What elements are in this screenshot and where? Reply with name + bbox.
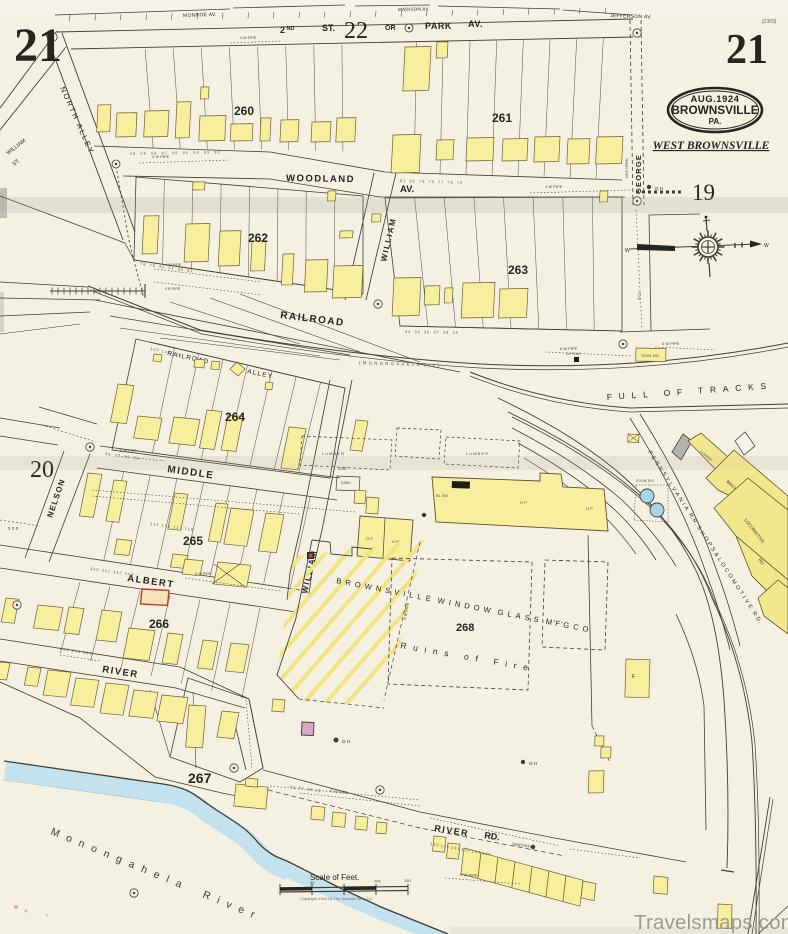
- svg-text:O P: O P: [366, 536, 373, 541]
- svg-text:W: W: [764, 243, 769, 249]
- svg-text:O.P.POLE: O.P.POLE: [566, 352, 580, 356]
- svg-text:W: W: [625, 248, 630, 254]
- svg-text:x x x: x x x: [8, 526, 19, 532]
- svg-text:OR: OR: [385, 25, 396, 32]
- svg-text:21: 21: [14, 19, 62, 72]
- svg-text:O H: O H: [529, 761, 537, 766]
- svg-text:265: 265: [183, 534, 203, 548]
- svg-text:L U M B E R: L U M B E R: [322, 451, 344, 456]
- svg-text:4 B PIPE: 4 B PIPE: [165, 287, 181, 291]
- svg-text:O H: O H: [342, 739, 350, 744]
- svg-text:4 W PIPE: 4 W PIPE: [240, 36, 257, 40]
- svg-text:O P: O P: [392, 539, 399, 544]
- svg-text:Copyright 1924 by The Sanborn: Copyright 1924 by The Sanborn Map Co.: [300, 896, 373, 901]
- svg-text:AV.: AV.: [468, 19, 483, 29]
- svg-text:Travelsmaps.com: Travelsmaps.com: [634, 911, 788, 934]
- svg-text:SAND: SAND: [341, 481, 351, 485]
- svg-text:O P: O P: [586, 506, 593, 511]
- svg-text:R.R.W.TKS: R.R.W.TKS: [636, 479, 655, 483]
- svg-text:BL SM: BL SM: [436, 493, 448, 498]
- svg-text:50: 50: [310, 880, 315, 885]
- svg-text:100: 100: [374, 879, 381, 884]
- svg-text:TOOL HO.: TOOL HO.: [641, 353, 660, 358]
- svg-text:6 W PIPE: 6 W PIPE: [662, 341, 680, 346]
- svg-text:261: 261: [492, 111, 512, 125]
- svg-text:F: F: [632, 674, 635, 680]
- svg-text:Scale of Feet.: Scale of Feet.: [310, 873, 359, 882]
- svg-text:WEST BROWNSVILLE: WEST BROWNSVILLE: [653, 140, 770, 152]
- svg-text:22: 22: [344, 18, 368, 44]
- svg-text:4 W PIPE: 4 W PIPE: [545, 184, 563, 189]
- svg-text:266: 266: [149, 617, 169, 631]
- svg-text:267: 267: [188, 770, 212, 786]
- svg-text:AV.: AV.: [400, 184, 414, 195]
- svg-text:GEORGE: GEORGE: [634, 154, 643, 194]
- svg-text:E W PIPE: E W PIPE: [120, 449, 137, 453]
- svg-text:NOT OPEN: NOT OPEN: [625, 158, 629, 178]
- svg-text:PA.: PA.: [709, 117, 722, 126]
- svg-text:6 W PIPE: 6 W PIPE: [195, 572, 212, 576]
- svg-text:260: 260: [234, 104, 254, 118]
- svg-text:PARK: PARK: [425, 21, 452, 31]
- svg-text:2: 2: [280, 25, 285, 35]
- svg-text:268: 268: [456, 622, 474, 634]
- svg-text:MADISON AV.: MADISON AV.: [398, 6, 430, 12]
- svg-text:ST.: ST.: [322, 23, 335, 33]
- svg-text:264: 264: [225, 410, 245, 424]
- svg-text:150: 150: [404, 878, 411, 883]
- svg-text:6 W PIPE: 6 W PIPE: [560, 346, 578, 351]
- svg-text:MONROE AV.: MONROE AV.: [183, 12, 217, 19]
- svg-text:BROWNSVILLE: BROWNSVILLE: [671, 103, 758, 117]
- svg-text:O P: O P: [520, 500, 527, 505]
- svg-text:ND: ND: [287, 26, 295, 32]
- svg-text:L U M B E R: L U M B E R: [466, 451, 488, 456]
- svg-text:WOODLAND: WOODLAND: [286, 173, 355, 185]
- svg-text:21: 21: [726, 27, 768, 73]
- svg-text:(2309): (2309): [762, 19, 777, 25]
- svg-text:262: 262: [248, 231, 268, 245]
- svg-text:O H: O H: [655, 186, 663, 191]
- svg-text:4 0 9: 4 0 9: [637, 291, 642, 300]
- svg-text:263: 263: [508, 263, 528, 277]
